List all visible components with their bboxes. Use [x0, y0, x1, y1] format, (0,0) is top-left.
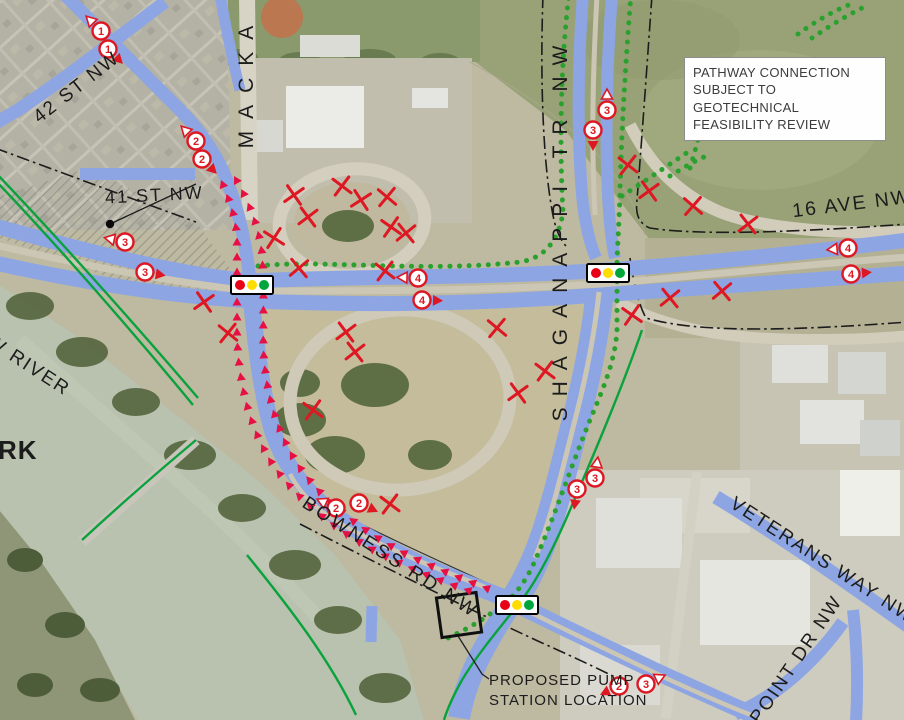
svg-text:3: 3 — [142, 267, 148, 279]
pump-station-label: PROPOSED PUMP STATION LOCATION — [489, 671, 648, 710]
traffic-signal — [231, 276, 273, 294]
svg-text:4: 4 — [415, 273, 422, 285]
road-point-dr — [853, 610, 857, 720]
svg-text:2: 2 — [193, 136, 199, 148]
svg-text:4: 4 — [419, 295, 426, 307]
callout-line: PATHWAY CONNECTION — [693, 64, 877, 81]
svg-text:3: 3 — [574, 484, 580, 496]
building — [286, 86, 364, 148]
svg-text:2: 2 — [356, 498, 362, 510]
traffic-signal — [496, 596, 538, 614]
svg-text:4: 4 — [848, 269, 855, 281]
svg-text:4: 4 — [845, 243, 852, 255]
svg-text:3: 3 — [122, 237, 128, 249]
label-shaganappi-tr-nw: SHAGANAPPI TR NW — [550, 0, 572, 468]
svg-text:2: 2 — [199, 154, 205, 166]
svg-text:1: 1 — [98, 26, 104, 38]
pathway-connection-callout: PATHWAY CONNECTION SUBJECT TO GEOTECHNIC… — [684, 57, 886, 141]
svg-text:3: 3 — [592, 473, 598, 485]
svg-text:3: 3 — [604, 105, 610, 117]
svg-text:3: 3 — [590, 125, 596, 137]
building — [596, 498, 682, 568]
traffic-signal — [587, 264, 629, 282]
callout-line: SUBJECT TO GEOTECHNICAL — [693, 81, 877, 116]
interchange-plan-map: 112222233344443333 42 ST NW 41 ST NW MAC… — [0, 0, 904, 720]
building — [772, 345, 828, 383]
label-park: RK — [0, 437, 38, 464]
callout-line: FEASIBILITY REVIEW — [693, 116, 877, 133]
label-mackay-rd: MACKA — [236, 0, 258, 171]
